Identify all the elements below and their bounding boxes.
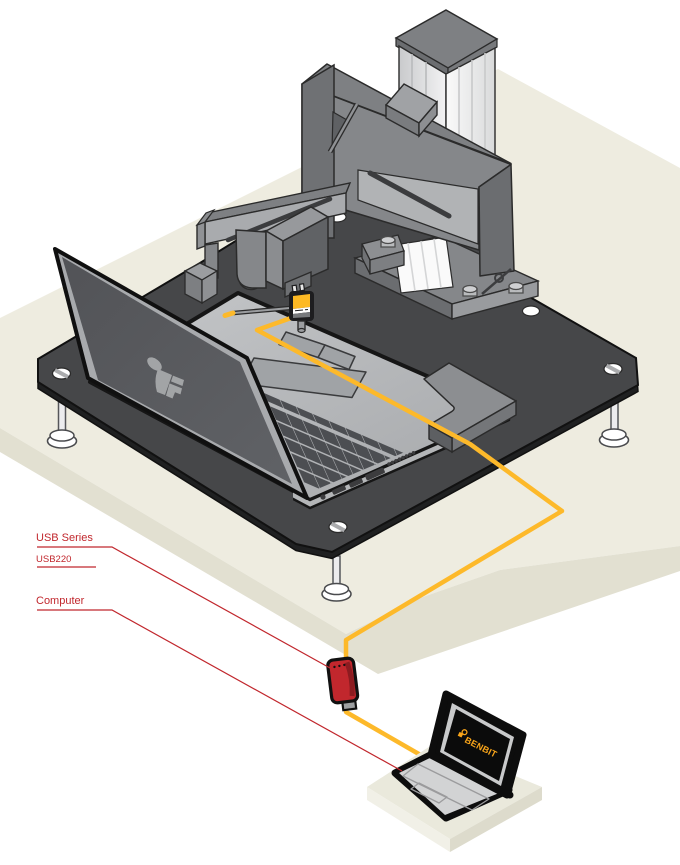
- svg-text:USB220: USB220: [36, 554, 71, 565]
- svg-text:Computer: Computer: [36, 595, 85, 607]
- svg-text:USB Series: USB Series: [36, 532, 93, 544]
